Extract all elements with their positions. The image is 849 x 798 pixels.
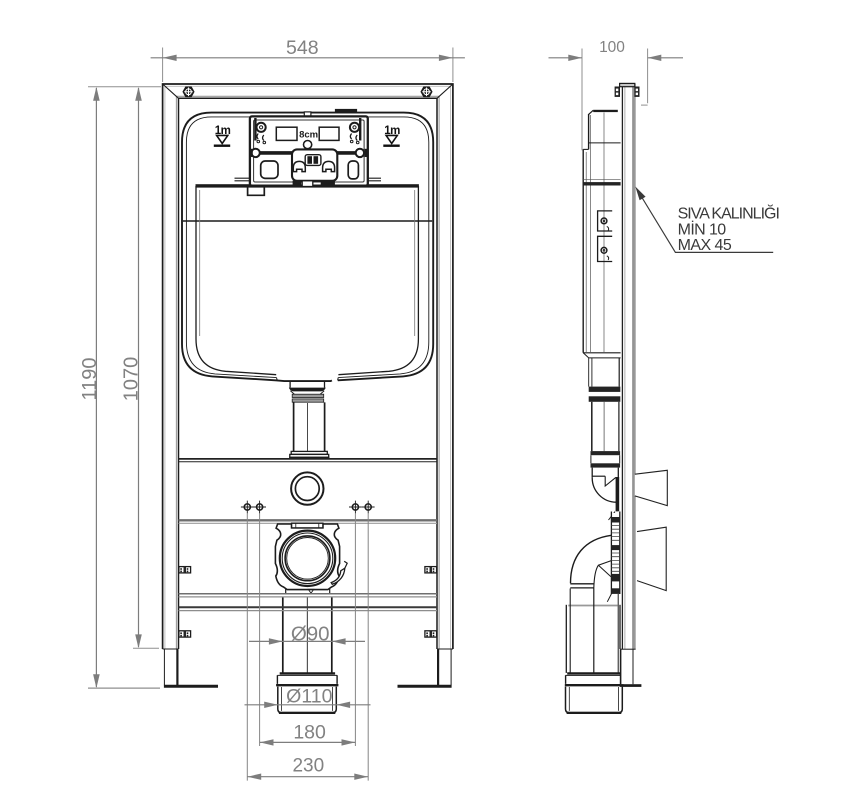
svg-text:MİN 10: MİN 10 (678, 220, 727, 239)
svg-text:230: 230 (292, 755, 324, 776)
svg-text:8cm: 8cm (299, 129, 318, 140)
svg-text:548: 548 (286, 37, 319, 59)
svg-text:MAX 45: MAX 45 (678, 237, 732, 254)
svg-text:SIVA KALINLIĞI: SIVA KALINLIĞI (678, 203, 779, 222)
svg-text:1190: 1190 (79, 357, 101, 400)
svg-text:1070: 1070 (121, 357, 143, 402)
svg-text:180: 180 (293, 721, 326, 743)
svg-text:100: 100 (599, 39, 625, 56)
svg-text:Ø110: Ø110 (286, 685, 332, 707)
